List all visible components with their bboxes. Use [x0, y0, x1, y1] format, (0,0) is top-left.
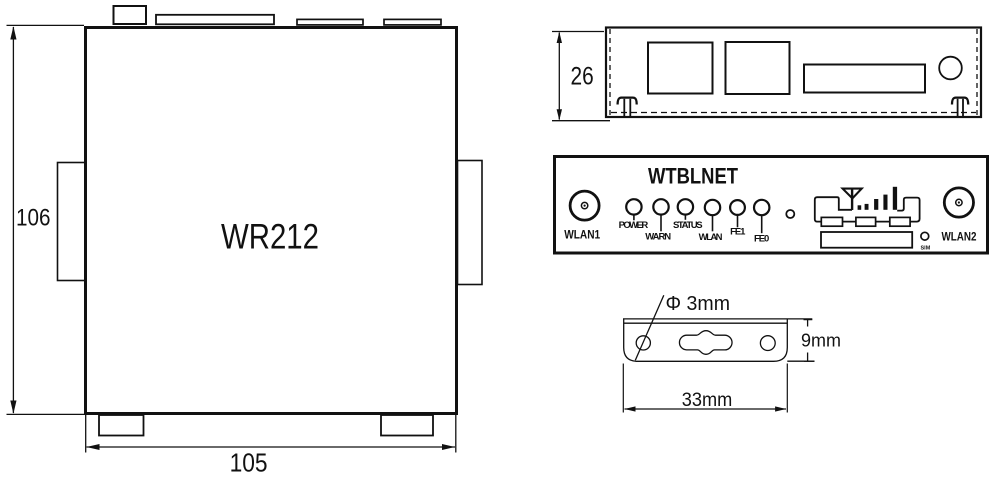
svg-text:WR212: WR212	[221, 218, 319, 257]
svg-text:WTBLNET: WTBLNET	[648, 163, 738, 188]
svg-text:WLAN: WLAN	[699, 232, 723, 243]
svg-text:106: 106	[16, 205, 51, 232]
svg-text:WLAN2: WLAN2	[942, 231, 977, 243]
svg-text:26: 26	[571, 63, 594, 91]
svg-text:WLAN1: WLAN1	[564, 229, 601, 241]
svg-text:FE1: FE1	[730, 227, 746, 238]
svg-text:POWER: POWER	[619, 220, 649, 231]
svg-text:STATUS: STATUS	[673, 220, 703, 231]
svg-text:SIM: SIM	[921, 245, 931, 251]
svg-text:105: 105	[230, 448, 268, 478]
svg-text:Φ 3mm: Φ 3mm	[666, 292, 731, 315]
svg-text:FE0: FE0	[754, 233, 769, 244]
svg-text:WARN: WARN	[645, 231, 671, 242]
svg-text:33mm: 33mm	[682, 389, 733, 411]
svg-text:9mm: 9mm	[801, 330, 841, 351]
